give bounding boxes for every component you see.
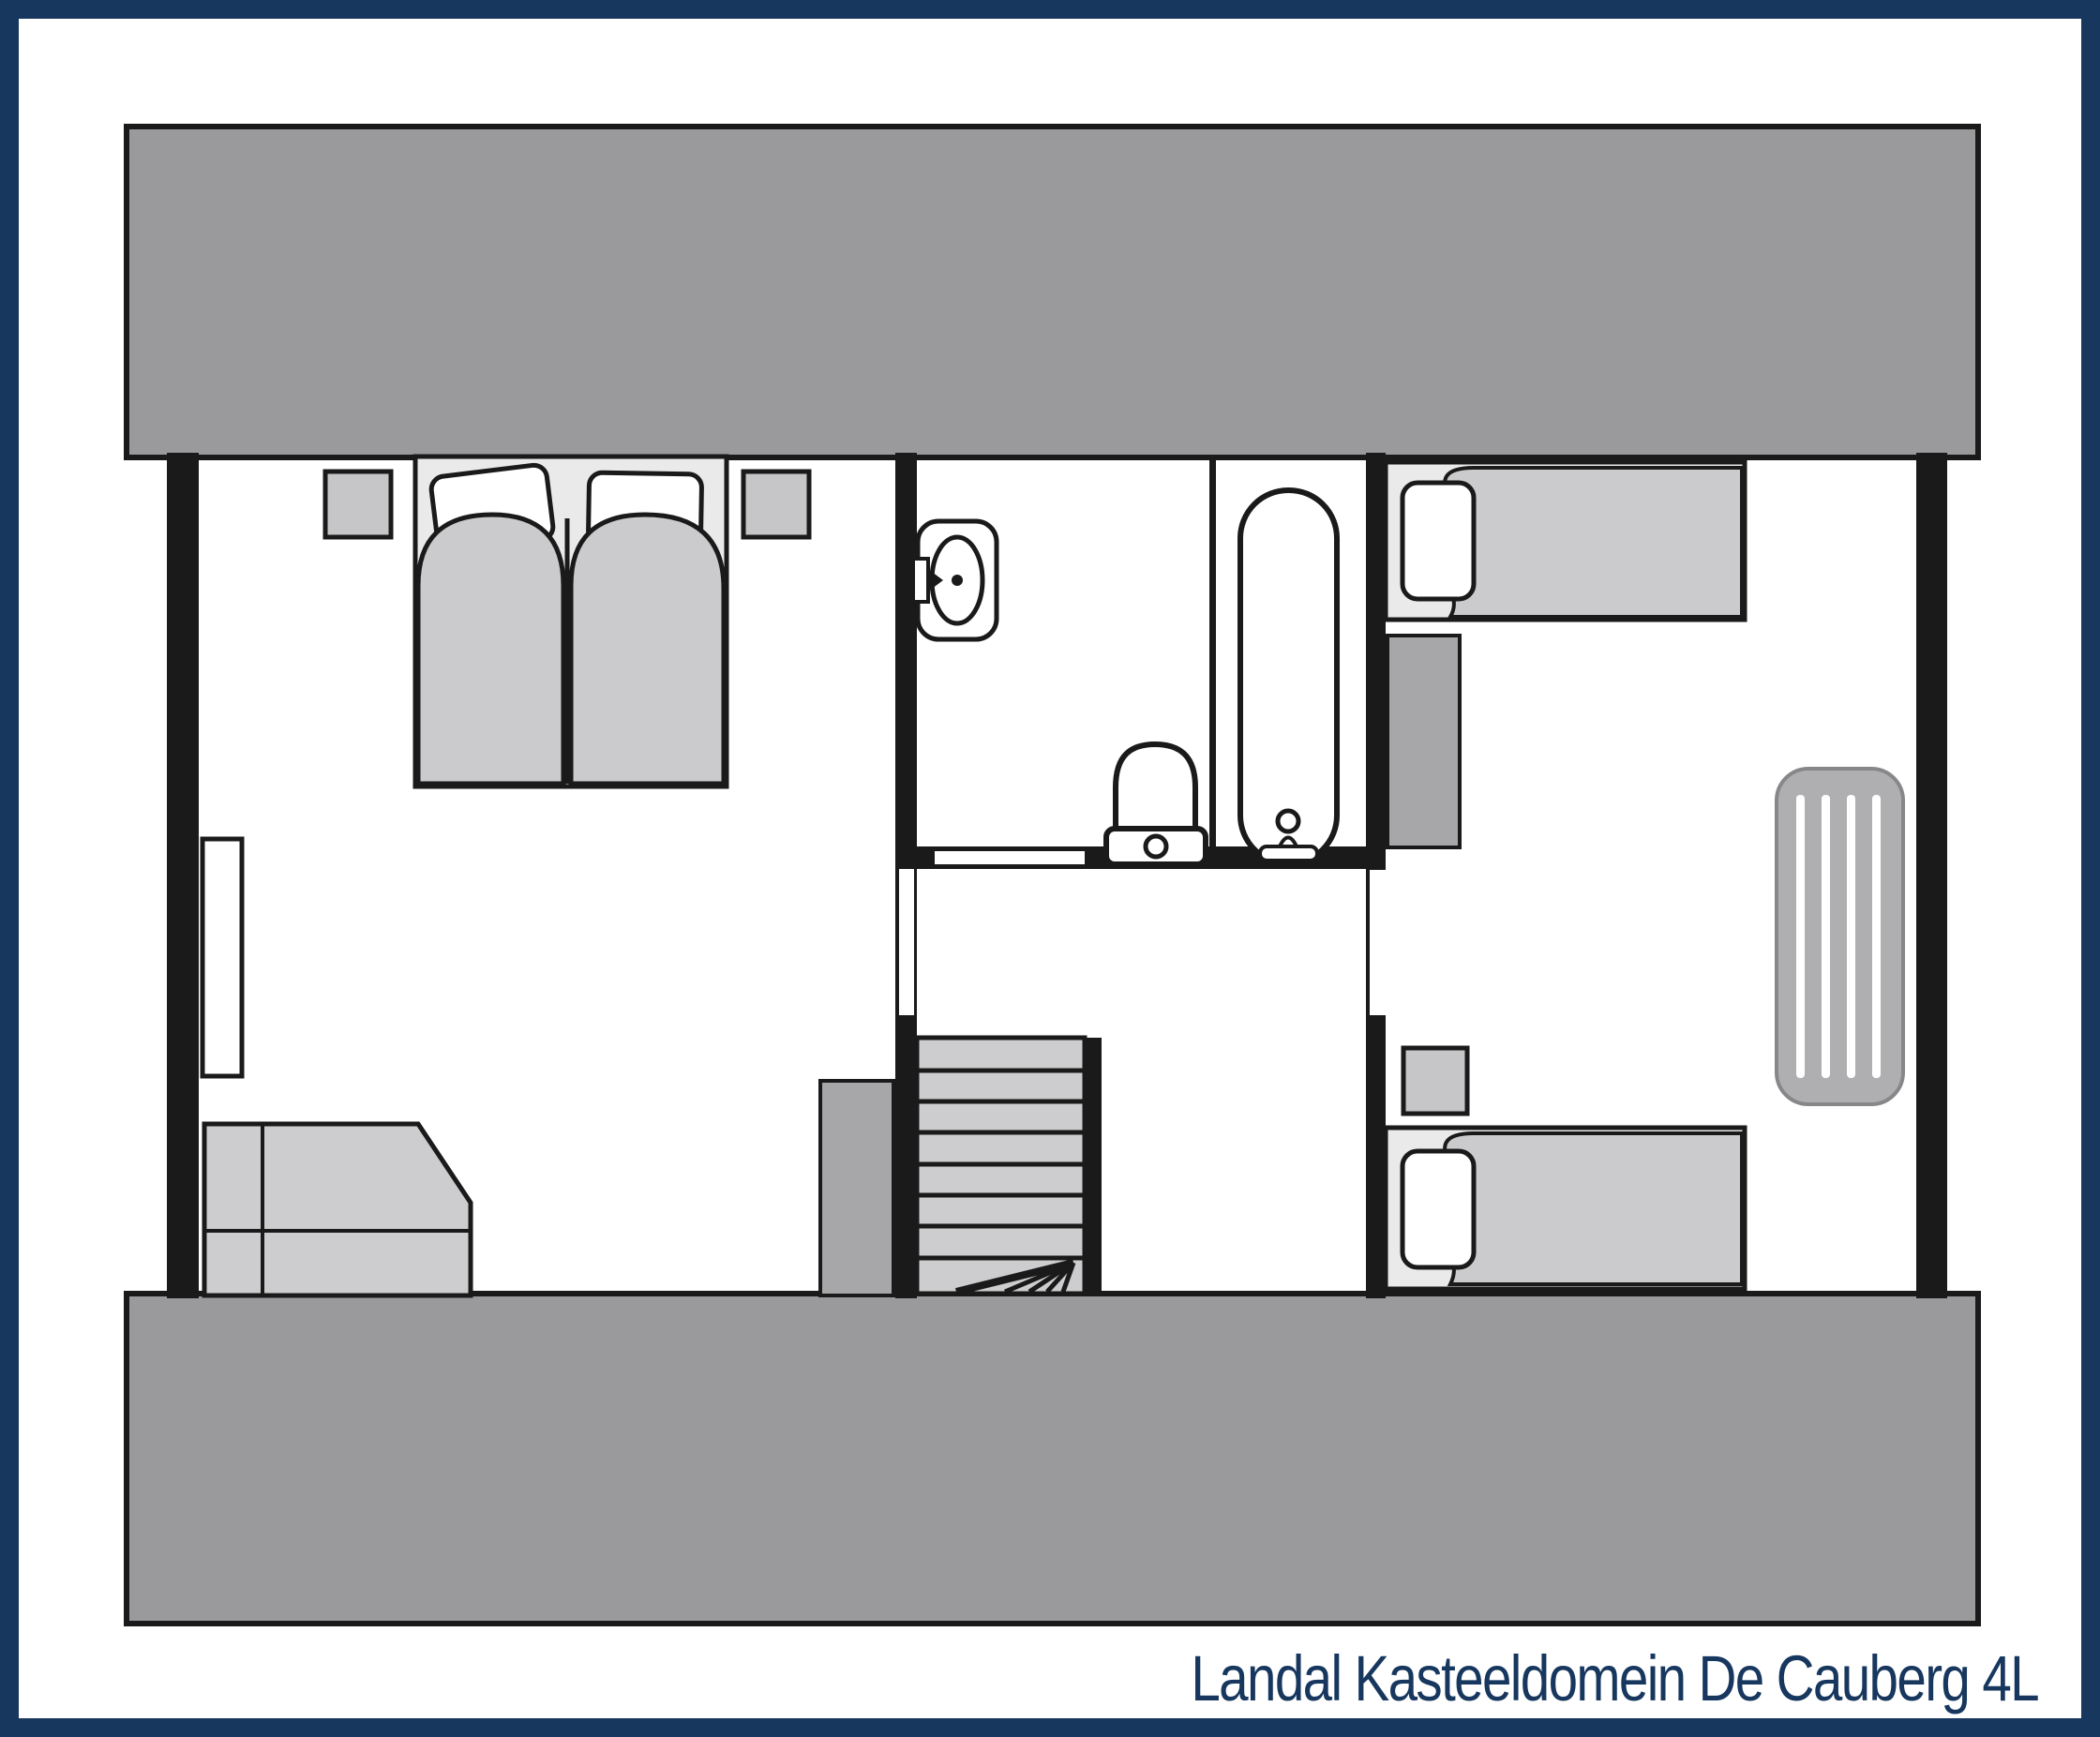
wall-stairs-right [1085,1038,1102,1295]
closet-right-bedroom [1387,636,1460,847]
plan-title: Landal Kasteeldomein De Cauberg 4L [1191,1639,2038,1719]
floorplan-drawing [19,19,2081,1718]
door-left-bedroom [899,869,914,1015]
air-mattress [1777,769,1903,1104]
right-bedroom [1386,462,1903,1289]
door-right-bedroom [1370,870,1386,1015]
left-bedroom [202,457,893,1295]
wardrobe-chamfered [204,1124,471,1295]
floorplan-page: Landal Kasteeldomein De Cauberg 4L [0,0,2100,1737]
dormer-window [202,839,242,1076]
single-bed-bottom-duvet [1432,1133,1743,1284]
single-bed-top-pillow [1402,483,1474,599]
duvet-right [571,515,724,784]
nightstand-right [743,472,809,537]
roof-slope-bottom [127,1294,1978,1624]
nightstand-right-bedroom [1403,1048,1467,1114]
door-openings [899,851,1386,1015]
washbasin [913,521,997,639]
single-bed-bottom-pillow [1402,1151,1474,1267]
staircase [917,1038,1085,1294]
wall-bathroom-internal [1209,456,1216,869]
single-bed-top-duvet [1432,468,1743,617]
toilet [1106,744,1206,864]
closet-by-stairs [820,1081,893,1295]
duvet-left [418,515,563,784]
wall-right-exterior [1916,453,1947,1298]
nightstand-left [325,472,391,537]
bathtub [1240,490,1337,863]
door-bathroom [935,851,1085,864]
bathroom [913,490,1337,864]
wall-left-exterior [167,453,199,1298]
roof-slope-top [127,127,1978,457]
